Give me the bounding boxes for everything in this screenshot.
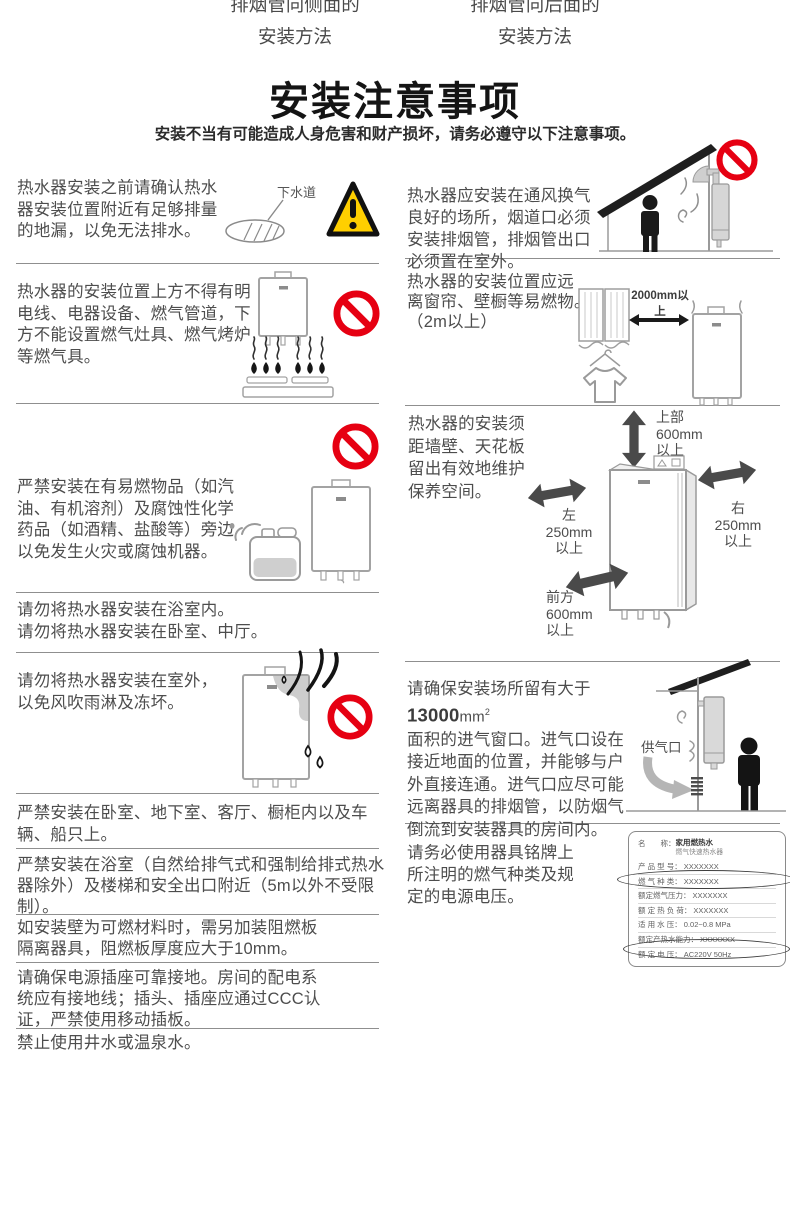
clearance-top-label: 上部 600mm 以上 (656, 409, 703, 459)
divider (16, 962, 379, 963)
air-inlet-diagram-icon (598, 653, 790, 817)
curtain-icon (578, 288, 630, 352)
water-drops-icon (300, 744, 330, 772)
warning-text: 严禁安装在有易燃物品（如汽 油、有机溶剂）及腐蚀性化学 药品（如酒精、盐酸等）旁… (17, 477, 252, 563)
arrow-left-right-icon (629, 313, 689, 327)
divider (16, 793, 379, 794)
person-icon (641, 195, 659, 252)
nameplate-value: 家用燃热水 (676, 838, 724, 848)
nameplate-label: 适 用 水 压： (638, 918, 682, 932)
divider (16, 263, 379, 264)
method-right-line1: 排烟管向后面的 (470, 0, 600, 15)
water-heater-3d-icon (598, 456, 708, 630)
prohibition-icon (332, 423, 379, 470)
rain-icon (280, 648, 344, 700)
clearance-right-label: 右 250mm 以上 (710, 500, 766, 550)
warning-text: 热水器的安装须 距墙壁、天花板 留出有效地维护 保养空间。 (408, 413, 538, 503)
floor-drain-icon (222, 193, 322, 247)
divider (16, 403, 379, 404)
method-left-line1: 排烟管向侧面的 (230, 0, 360, 15)
nameplate-label: 名 称： (638, 838, 676, 860)
warning-triangle-icon (326, 179, 380, 239)
method-label-rear: 排烟管向后面的安装方法 (450, 0, 620, 53)
warning-text: 请确保电源插座可靠接地。房间的配电系 统应有接地线；插头、插座应通过CCC认 证… (17, 968, 357, 1031)
clearance-left-label: 左 250mm 以上 (541, 507, 597, 557)
nameplate-value: XXXXXXX (693, 889, 728, 903)
tshirt-hanger-icon (578, 346, 632, 406)
method-left-line2: 安装方法 (258, 26, 332, 47)
warning-text: 严禁安装在浴室（自然给排气式和强制给排式热水 器除外）及楼梯和安全出口附近（5m… (17, 855, 392, 918)
warning-text: 请勿将热水器安装在浴室内。 请勿将热水器安装在卧室、中厅。 (17, 600, 347, 643)
nameplate-value: XXXXXXX (693, 904, 728, 918)
method-right-line2: 安装方法 (498, 26, 572, 47)
divider (16, 592, 379, 593)
warning-text: 热水器应安装在通风换气 良好的场所，烟道口必须 安装排烟管，排烟管出口 必须置在… (407, 185, 607, 273)
installation-manual-page: 排烟管向侧面的安装方法 排烟管向后面的安装方法 安装注意事项 安装不当有可能造成… (0, 0, 790, 1229)
water-heater-icon (308, 477, 374, 583)
air-inlet-area-sup: 2 (485, 707, 490, 717)
nameplate-row: 名 称： 家用燃热水 燃气快速热水器 (638, 838, 776, 860)
prohibition-icon (327, 694, 373, 740)
warning-text: 热水器的安装位置上方不得有明 电线、电器设备、燃气管道，下 方不能设置燃气灶具、… (17, 282, 267, 368)
warning-text: 热水器安装之前请确认热水 器安装位置附近有足够排量 的地漏，以免无法排水。 (17, 178, 257, 243)
nameplate-value2: 燃气快速热水器 (676, 848, 724, 857)
divider (16, 848, 379, 849)
air-inlet-text-rest: 面积的进气窗口。进气口设在 接近地面的位置，并能够与户 外直接连通。进气口应尽可… (407, 731, 624, 839)
warning-text: 严禁安装在卧室、地下室、客厅、橱柜内以及车 辆、船只上。 (17, 803, 382, 846)
prohibition-icon (716, 139, 758, 181)
air-inlet-area-unit: mm (459, 708, 484, 725)
jerrycan-icon (228, 516, 306, 582)
person-icon (738, 738, 760, 812)
air-inlet-area-value: 13000 (407, 704, 459, 725)
nameplate-value: 0.02~0.8 MPa (684, 918, 731, 932)
warning-text: 热水器的安装位置应远 离窗帘、壁橱等易燃物。 （2m以上） (407, 272, 597, 332)
warning-text: 请务必使用器具铭牌上 所注明的燃气种类及规 定的电源电压。 (407, 842, 587, 908)
water-heater-icon (688, 300, 746, 406)
nameplate-label: 额 定 热 负 荷： (638, 904, 691, 918)
nameplate-row: 适 用 水 压：0.02~0.8 MPa (638, 918, 776, 933)
prohibition-icon (333, 290, 380, 337)
air-supply-label: 供气口 (641, 736, 682, 756)
warning-text: 禁止使用井水或温泉水。 (17, 1033, 357, 1055)
clearance-front-label: 前方 600mm 以上 (546, 589, 593, 639)
warning-text: 如安装壁为可燃材料时，需另加装阻燃板 隔离器具，阻燃板厚度应大于10mm。 (17, 918, 357, 960)
gas-type-highlight-oval (617, 870, 790, 889)
nameplate-row: 额定燃气压力：XXXXXXX (638, 889, 776, 904)
warning-text: 请勿将热水器安装在室外， 以免风吹雨淋及冻坏。 (17, 671, 247, 714)
gas-stove-icon (241, 336, 335, 400)
voltage-highlight-oval (623, 939, 790, 959)
nameplate-label: 额定燃气压力： (638, 889, 691, 903)
air-inlet-text-pre: 请确保安装场所留有大于 (407, 680, 591, 698)
page-title: 安装注意事项 (0, 69, 790, 127)
nameplate-row: 额 定 热 负 荷：XXXXXXX (638, 904, 776, 919)
method-label-side: 排烟管向侧面的安装方法 (210, 0, 380, 53)
